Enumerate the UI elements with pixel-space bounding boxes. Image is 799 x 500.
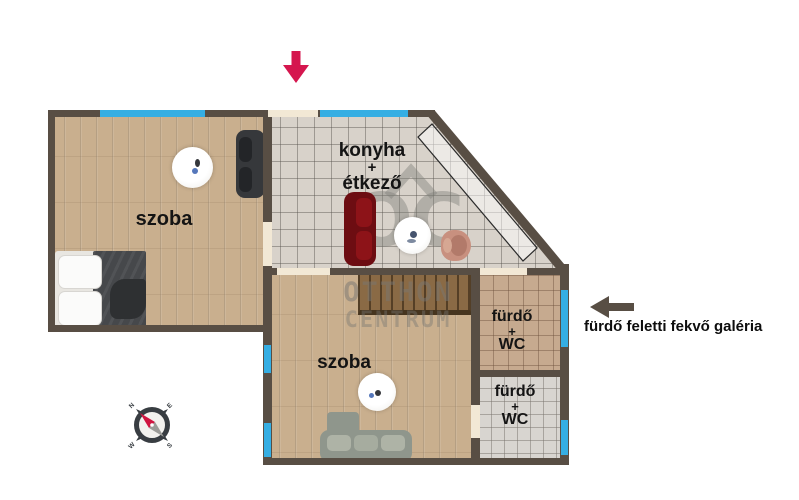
room-label-szoba-2: szoba <box>294 353 394 373</box>
kitchen-counter <box>418 124 537 261</box>
gallery-arrow-icon <box>589 294 637 320</box>
floor-plan: OC OTTHON CENTRUM <box>0 0 799 500</box>
gallery-annotation-text: fürdő feletti fekvő galéria <box>584 318 784 335</box>
compass-icon: N E W S <box>126 398 180 454</box>
svg-text:W: W <box>127 441 137 451</box>
room-label-bath-top: fürdő + WC <box>472 309 552 354</box>
entrance-arrow-icon <box>281 51 313 85</box>
svg-text:N: N <box>128 402 136 410</box>
room-label-szoba-1: szoba <box>114 209 214 230</box>
svg-text:E: E <box>166 401 174 409</box>
room-label-kitchen: konyha + étkező <box>322 141 422 194</box>
walls-layer <box>0 0 799 500</box>
room-label-bath-bottom: fürdő + WC <box>475 384 555 429</box>
diagonal-wall <box>431 113 564 271</box>
svg-text:S: S <box>166 441 174 449</box>
